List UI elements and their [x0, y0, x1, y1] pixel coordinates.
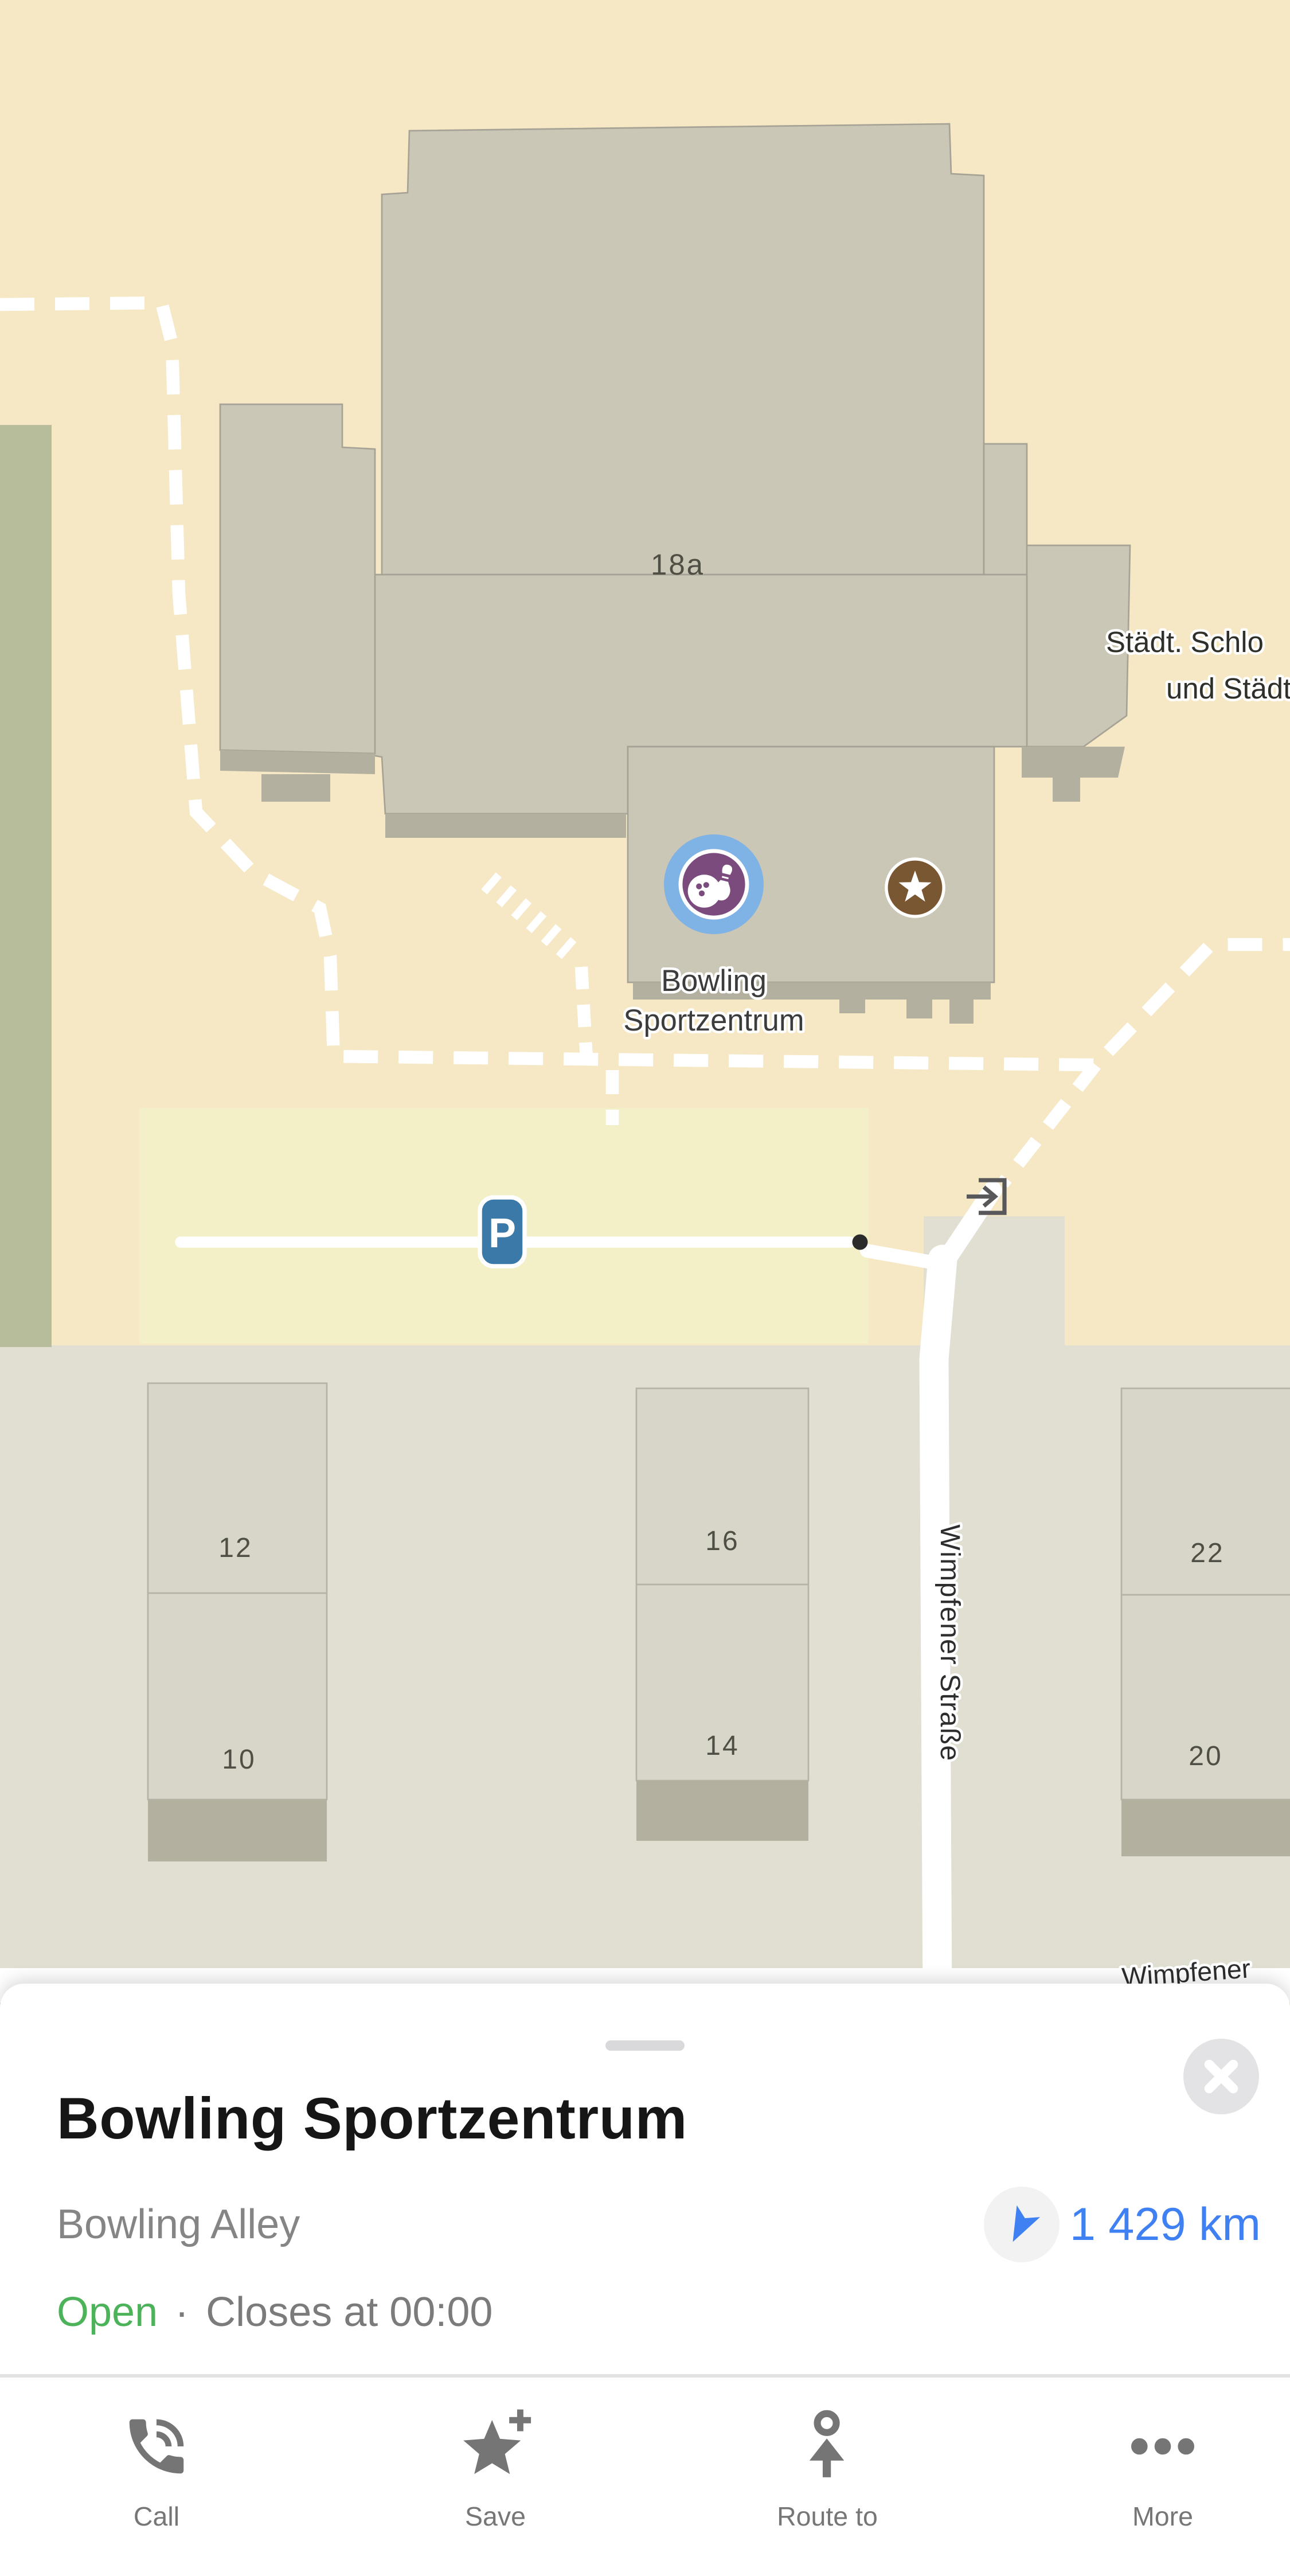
place-label-line1: Bowling — [661, 964, 767, 998]
sheet-drag-handle[interactable] — [605, 2040, 685, 2051]
call-label: Call — [120, 2503, 193, 2534]
place-label-line2: Sportzentrum — [623, 1004, 804, 1037]
distance-row: 1 429 km — [984, 2187, 1261, 2262]
path-end-dot — [853, 1235, 868, 1250]
house-number-14: 14 — [705, 1731, 739, 1761]
map-canvas[interactable]: 18a Städt. Schlo und Städt. — [0, 0, 1290, 2013]
bowling-poi-icon[interactable] — [664, 834, 764, 934]
poi-label-truncated-line1: Städt. Schlo — [1106, 626, 1264, 658]
poi-label-truncated-line2: und Städt. — [1166, 672, 1290, 705]
house-number-20: 20 — [1189, 1741, 1222, 1771]
house-number-18a: 18a — [651, 548, 705, 581]
direction-badge — [984, 2187, 1060, 2262]
house-number-16: 16 — [705, 1526, 739, 1556]
map-green-area — [0, 425, 52, 1347]
parking-sign[interactable]: P — [480, 1197, 525, 1266]
favorite-star-poi-icon[interactable] — [885, 857, 945, 918]
close-button[interactable] — [1183, 2039, 1259, 2114]
more-label: More — [1125, 2503, 1201, 2534]
status-separator: · — [175, 2290, 189, 2336]
hours-status: Open·Closes at 00:00 — [57, 2290, 493, 2338]
call-button[interactable]: Call — [120, 2403, 193, 2534]
house-number-22: 22 — [1190, 1538, 1224, 1568]
phone-icon — [120, 2410, 193, 2483]
star-plus-icon — [456, 2407, 535, 2486]
street-label-wimpfener-strasse: Wimpfener Straße — [935, 1524, 965, 1761]
action-bar-divider — [0, 2374, 1290, 2378]
distance-value: 1 429 km — [1070, 2198, 1261, 2251]
house-number-12: 12 — [218, 1533, 252, 1563]
parking-letter: P — [488, 1211, 516, 1256]
route-to-button[interactable]: Route to — [777, 2403, 878, 2534]
maps-app-screen: 18a Städt. Schlo und Städt. — [0, 0, 1290, 2575]
place-card-sheet: Bowling Sportzentrum Bowling Alley 1 429… — [0, 1984, 1290, 2575]
more-dots-icon — [1125, 2409, 1201, 2484]
more-button[interactable]: More — [1125, 2403, 1201, 2534]
open-status: Open — [57, 2290, 158, 2336]
route-pin-arrow-icon — [789, 2409, 865, 2484]
save-label: Save — [456, 2503, 535, 2534]
route-to-label: Route to — [777, 2503, 878, 2534]
house-number-10: 10 — [222, 1744, 256, 1775]
direction-arrow-icon — [999, 2202, 1044, 2247]
place-category: Bowling Alley — [57, 2202, 300, 2250]
closes-at-text: Closes at 00:00 — [206, 2290, 492, 2336]
save-button[interactable]: Save — [456, 2403, 535, 2534]
place-title: Bowling Sportzentrum — [57, 2087, 687, 2154]
